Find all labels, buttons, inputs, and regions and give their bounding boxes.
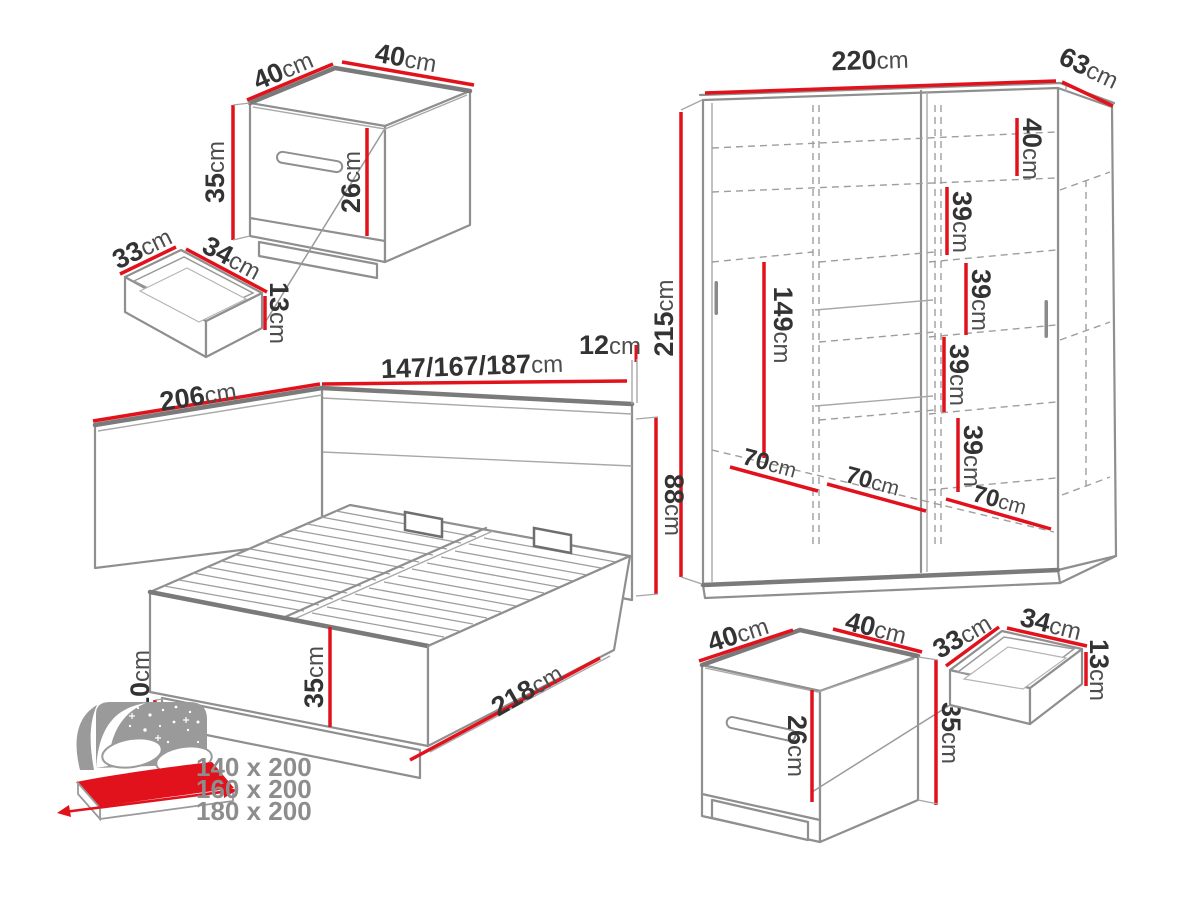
- dim-ns-br-drawer: 26cm: [782, 715, 812, 777]
- dim-headboard-top: 12cm: [579, 330, 641, 360]
- dim-bed-frame-height: 35cm: [299, 646, 329, 708]
- dim-ns-br-height: 35cm: [936, 702, 966, 764]
- drawer-top-left: 33cm 34cm 13cm: [108, 221, 294, 357]
- dim-ns-tl-drawer: 26cm: [336, 151, 366, 213]
- dim-drawer-br-height: 13cm: [1084, 639, 1114, 701]
- drawer-bottom-right: 33cm 34cm 13cm: [928, 602, 1114, 724]
- dim-wardrobe-width: 220cm: [831, 44, 909, 77]
- dim-wardrobe-hanging-height: 149cm: [768, 286, 798, 363]
- dim-ns-tl-width: 40cm: [373, 38, 439, 78]
- dim-wardrobe-depth: 63cm: [1055, 41, 1124, 94]
- diagram-canvas: 220cm 63cm 215cm 149cm 40cm 39cm 39cm 39…: [0, 0, 1200, 900]
- wardrobe: 220cm 63cm 215cm 149cm 40cm 39cm 39cm 39…: [649, 41, 1123, 598]
- wardrobe-right-side: [1058, 88, 1116, 570]
- dim-bed-widths: 147/167/187cm: [380, 348, 563, 384]
- dim-headboard-height: 88cm: [659, 474, 689, 536]
- legend-size-2: 180 x 200: [196, 796, 312, 826]
- furniture-dimension-diagram: 220cm 63cm 215cm 149cm 40cm 39cm 39cm 39…: [0, 0, 1200, 900]
- dimension-line-bed-widths: [322, 381, 627, 384]
- dim-shelf-gap-4: 39cm: [958, 425, 988, 487]
- wardrobe-handle-left: [715, 281, 719, 315]
- dim-drawer-tl-height: 13cm: [264, 282, 294, 344]
- dim-ns-tl-height: 35cm: [200, 141, 230, 203]
- dim-wardrobe-height: 215cm: [649, 279, 679, 356]
- dim-shelf-gap-3: 39cm: [944, 344, 974, 406]
- dim-shelf-gap-2: 39cm: [966, 269, 996, 331]
- nightstand-bottom-right: 40cm 40cm 26cm 35cm: [699, 606, 966, 842]
- wardrobe-handle-right: [1045, 300, 1049, 338]
- dim-shelf-gap-1: 39cm: [947, 191, 977, 253]
- dim-shelf-gap-0: 40cm: [1017, 118, 1047, 180]
